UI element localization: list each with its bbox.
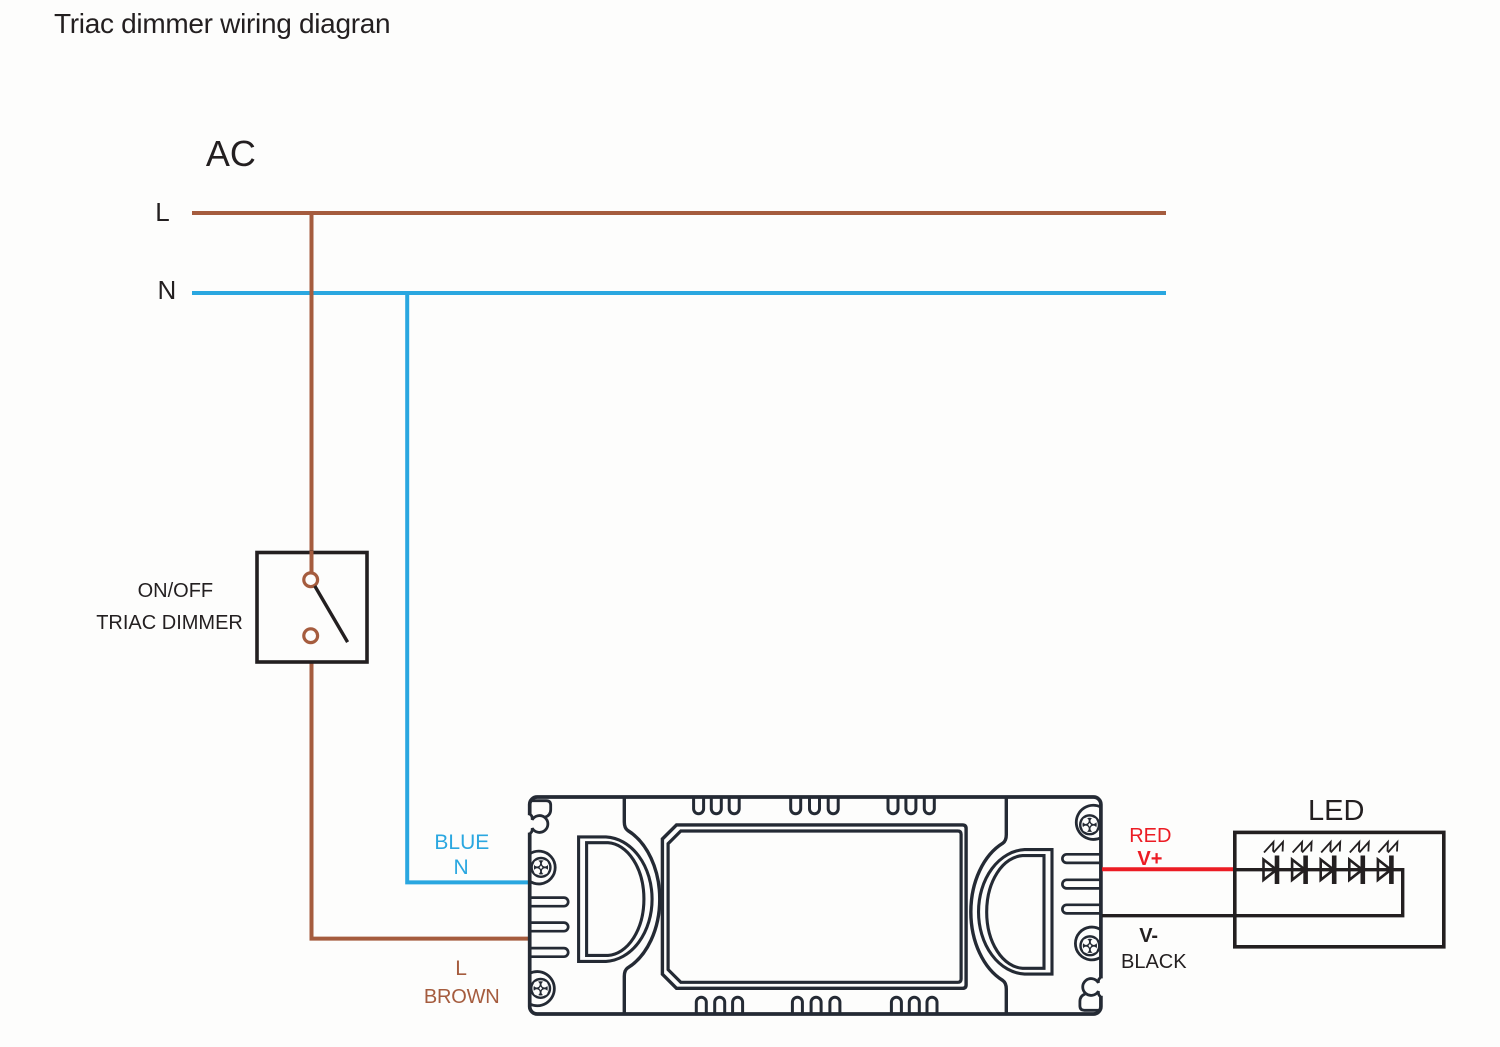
svg-text:LED: LED	[1308, 795, 1364, 827]
svg-text:TRIAC DIMMER: TRIAC DIMMER	[96, 612, 243, 634]
svg-text:AC: AC	[206, 133, 256, 174]
svg-text:BROWN: BROWN	[424, 986, 500, 1008]
svg-text:L: L	[455, 957, 467, 980]
svg-text:V-: V-	[1139, 925, 1158, 947]
svg-text:N: N	[158, 275, 177, 305]
svg-text:ON/OFF: ON/OFF	[138, 580, 214, 602]
svg-text:L: L	[155, 197, 169, 227]
svg-text:V+: V+	[1137, 848, 1162, 870]
svg-text:RED: RED	[1129, 825, 1171, 847]
svg-text:Triac dimmer wiring diagran: Triac dimmer wiring diagran	[54, 8, 390, 39]
svg-text:BLUE: BLUE	[434, 831, 489, 854]
svg-text:BLACK: BLACK	[1121, 951, 1187, 973]
svg-text:N: N	[454, 856, 469, 879]
